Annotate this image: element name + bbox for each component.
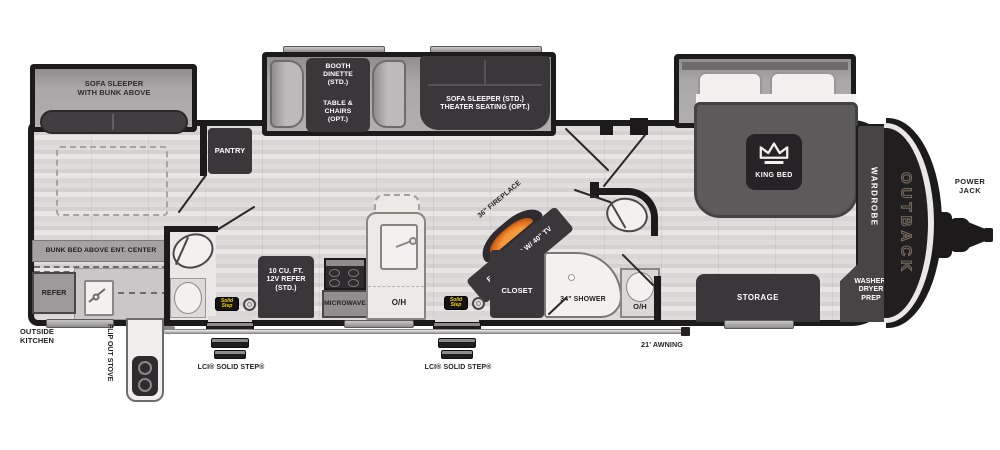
dinette-bench-right <box>372 60 406 128</box>
awning-end-cap <box>681 327 690 336</box>
range-knob-strip <box>326 260 364 266</box>
wardrobe-label: WARDROBE <box>870 167 879 227</box>
front-sofa-back <box>40 110 188 134</box>
counter-dash <box>118 292 168 294</box>
speaker-icon-2 <box>472 297 485 310</box>
bath-wall-stub-right <box>654 276 661 320</box>
power-jack-tip <box>984 228 993 242</box>
slide-rail-rear <box>724 320 794 329</box>
closet-label: CLOSET <box>501 287 532 296</box>
front-bath-wall-h <box>164 226 218 232</box>
flip-out-stove-label: FLIP OUT STOVE <box>106 324 113 408</box>
floorplan-canvas: SOFA SLEEPER WITH BUNK ABOVE PANTRY BUNK… <box>0 0 1000 450</box>
bath-sink <box>626 272 654 302</box>
island-oh-label: O/H <box>380 298 418 307</box>
step-label-1: LCI® SOLID STEP® <box>185 364 277 372</box>
toilet-partition-stub <box>590 182 599 198</box>
outside-kitchen-label: OUTSIDE KITCHEN <box>14 328 80 346</box>
front-slide-label: SOFA SLEEPER WITH BUNK ABOVE <box>40 80 188 98</box>
front-bath-sink <box>174 282 202 314</box>
range-burner-2 <box>348 269 359 277</box>
slide-rail-mid <box>344 320 414 328</box>
solid-step-badge-2: Solid Step <box>444 296 468 310</box>
closet: CLOSET <box>490 250 544 318</box>
entry-step-1-tread-mid <box>211 338 249 348</box>
crown-icon <box>757 140 791 168</box>
microwave-label-box: MICROWAVE <box>322 290 368 318</box>
bedroom-wall-stub-2 <box>630 118 648 135</box>
refer-12v-label: 10 CU. FT. 12V REFER (STD.) <box>258 268 314 293</box>
brand-panel: OUTBACK <box>884 128 928 318</box>
storage-label: STORAGE <box>737 293 779 302</box>
speaker-icon-1 <box>243 298 256 311</box>
dinette-bench-left <box>270 60 304 128</box>
awning-rail <box>163 329 683 334</box>
stove-burner-1 <box>138 361 152 375</box>
power-jack-body <box>948 218 970 252</box>
dinette-std-label: BOOTH DINETTE (STD.) <box>306 63 370 87</box>
awning-rail-hook <box>163 326 175 330</box>
sofa-std-label: SOFA SLEEPER (STD.) THEATER SEATING (OPT… <box>422 96 548 113</box>
outside-kitchen-sink <box>84 280 114 316</box>
front-sofa-cushion-split <box>112 114 114 130</box>
awning-label: 21' AWNING <box>622 341 702 349</box>
pantry-label: PANTRY <box>215 147 246 156</box>
refer-label-box: REFER <box>32 272 76 314</box>
brand-label: OUTBACK <box>898 172 915 275</box>
sofa-cushion-line-h <box>428 84 542 86</box>
range-burner-4 <box>348 279 359 287</box>
entry-step-2-tread-bot <box>441 350 473 359</box>
pantry: PANTRY <box>208 128 252 174</box>
slide-rail-front <box>46 319 114 328</box>
stove-burner-2 <box>138 378 152 392</box>
pantry-wall <box>200 120 207 176</box>
solid-step-badge-1: Solid Step <box>215 297 239 311</box>
front-sofa-footprint <box>56 146 168 216</box>
shower-label: 34" SHOWER <box>548 296 618 304</box>
dinette-opt-label: TABLE & CHAIRS (OPT.) <box>306 100 370 124</box>
range-burner-3 <box>329 279 340 287</box>
island-sink <box>380 224 418 270</box>
bunk-label: BUNK BED ABOVE ENT. CENTER <box>32 240 170 262</box>
entry-step-2-tread-mid <box>438 338 476 348</box>
storage: STORAGE <box>696 274 820 322</box>
power-jack-label: POWER JACK <box>942 178 998 196</box>
shower-drain <box>568 274 575 281</box>
island-dash <box>368 286 424 287</box>
king-headboard-bar <box>682 62 848 70</box>
bedroom-wall-stub-1 <box>600 120 613 135</box>
king-bed-label: KING BED <box>746 172 802 180</box>
range-burner-1 <box>329 269 340 277</box>
entry-step-1-tread-bot <box>214 350 246 359</box>
step-label-2: LCI® SOLID STEP® <box>412 364 504 372</box>
sofa-cushion-line-v <box>484 60 486 84</box>
